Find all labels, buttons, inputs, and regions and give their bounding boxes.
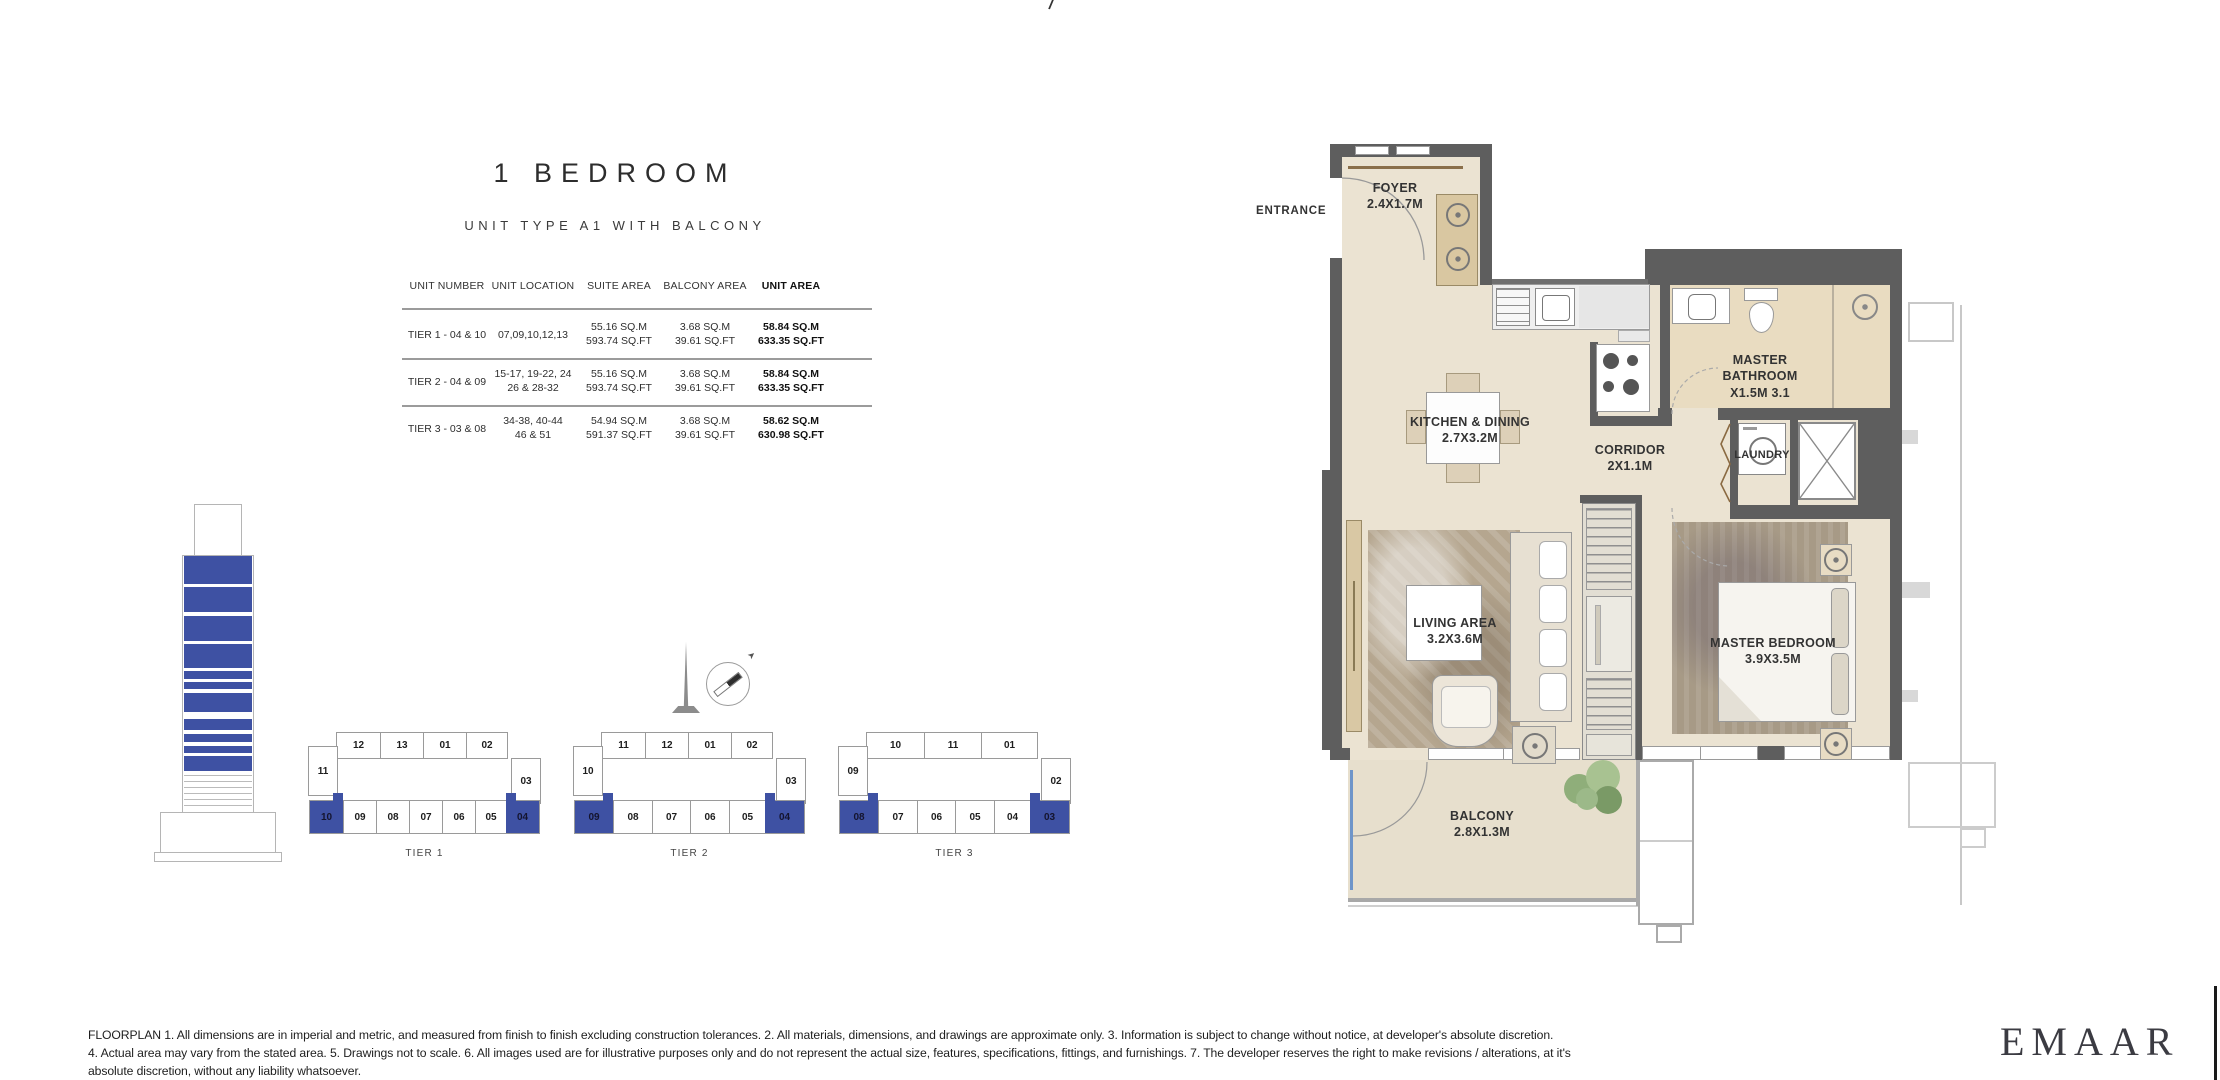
dishwasher — [1496, 288, 1530, 326]
tower-band — [184, 671, 252, 679]
unit-cell-highlighted: 08 — [840, 801, 878, 833]
wall-segment — [1580, 495, 1642, 503]
page-title: 1 BEDROOM — [380, 158, 850, 189]
table-row-cell: 07,09,10,12,13 — [490, 328, 576, 342]
lamp-icon — [1824, 732, 1848, 756]
table-row-cell-unit-area: 58.84 SQ.M633.35 SQ.FT — [748, 367, 834, 395]
tower-band — [184, 756, 252, 771]
unit-cell: 07 — [409, 801, 442, 833]
table-row-cell: 3.68 SQ.M39.61 SQ.FT — [662, 367, 748, 395]
entrance-label: ENTRANCE — [1256, 204, 1324, 219]
laundry-label: LAUNDRY — [1720, 448, 1804, 462]
tier2-left-cell: 10 — [573, 746, 603, 796]
col-header-unit-number: UNIT NUMBER — [404, 280, 490, 292]
unit-cell-highlighted: 04 — [765, 801, 804, 833]
unit-cell: 12 — [337, 733, 380, 758]
tower-elevation — [150, 500, 290, 872]
highlight-notch — [506, 793, 516, 801]
unit-cell: 09 — [343, 801, 376, 833]
unit-cell: 08 — [613, 801, 652, 833]
shower-head-icon — [1852, 294, 1878, 320]
armchair-seat — [1441, 686, 1491, 728]
tower-base — [154, 852, 282, 862]
unit-cell: 02 — [466, 733, 507, 758]
table-row-cell-unit-area: 58.84 SQ.M633.35 SQ.FT — [748, 320, 834, 348]
wall-segment — [1590, 416, 1672, 426]
table-row-cell: 34-38, 40-4446 & 51 — [490, 414, 576, 442]
unit-cell: 12 — [645, 733, 688, 758]
col-header-balcony-area: BALCONY AREA — [662, 280, 748, 292]
col-header-suite-area: SUITE AREA — [576, 280, 662, 292]
table-row-cell: 3.68 SQ.M39.61 SQ.FT — [662, 414, 748, 442]
balcony-glass-line — [1350, 770, 1353, 890]
tier1-left-cell: 11 — [308, 746, 338, 796]
nightstand — [1820, 728, 1852, 760]
kitchen-sink — [1535, 288, 1575, 326]
unit-cell: 06 — [690, 801, 729, 833]
neighbor-outline — [1908, 302, 1954, 342]
sofa-cushion — [1539, 541, 1567, 579]
tower-shaft — [182, 555, 254, 813]
unit-cell: 11 — [602, 733, 645, 758]
tower-band — [184, 746, 252, 753]
table-row-cell: 15-17, 19-22, 2426 & 28-32 — [490, 367, 576, 395]
lamp-icon — [1522, 733, 1548, 759]
foyer-shelf — [1348, 166, 1463, 169]
tier3-keyplan: 10 11 01 09 02 08 07 06 05 04 03 TIER 3 — [838, 726, 1071, 866]
tower-band — [184, 556, 252, 584]
disclaimer-line3: absolute discretion, without any liabili… — [88, 1062, 1918, 1080]
toilet-tank — [1744, 288, 1778, 301]
unit-cell-highlighted: 03 — [1030, 801, 1069, 833]
appliance-dial-icon — [1446, 247, 1470, 271]
unit-cell: 02 — [731, 733, 772, 758]
unit-cell-highlighted: 09 — [575, 801, 613, 833]
unit-cell: 01 — [981, 733, 1037, 758]
wall-segment — [1342, 748, 1350, 760]
table-rule — [402, 405, 872, 407]
unit-cell: 04 — [994, 801, 1030, 833]
tower-band — [184, 616, 252, 641]
unit-cell: 10 — [867, 733, 924, 758]
burner-icon — [1627, 355, 1638, 366]
wall-segment — [1858, 420, 1890, 505]
wardrobe-rail — [1595, 605, 1601, 665]
stove — [1596, 344, 1650, 412]
disclaimer-line1: FLOORPLAN 1. All dimensions are in imper… — [88, 1026, 1918, 1044]
page-subtitle: UNIT TYPE A1 WITH BALCONY — [380, 218, 850, 233]
tower-band — [184, 644, 252, 668]
dining-chair — [1446, 373, 1480, 393]
tier-label: TIER 3 — [838, 848, 1071, 859]
plant — [1560, 758, 1630, 820]
highlight-notch — [765, 793, 775, 801]
tier1-keyplan: 12 13 01 02 11 03 10 09 08 07 06 05 04 T… — [308, 726, 541, 866]
unit-cell: 11 — [309, 747, 337, 795]
sofa-cushion — [1539, 673, 1567, 711]
tier3-right-cell: 02 — [1041, 758, 1071, 804]
col-header-unit-area: UNIT AREA — [748, 280, 834, 292]
counter-speckle — [1579, 286, 1649, 328]
tier3-bottom-row: 08 07 06 05 04 03 — [839, 800, 1070, 834]
brochure-page: / 1 BEDROOM UNIT TYPE A1 WITH BALCONY UN… — [0, 0, 2220, 1080]
corridor-label: CORRIDOR 2X1.1M — [1578, 442, 1682, 475]
kitchen-dining-label: KITCHEN & DINING 2.7X3.2M — [1390, 414, 1550, 447]
lamp-icon — [1824, 548, 1848, 572]
plant-leaf — [1594, 786, 1622, 814]
blanket-fold — [1719, 677, 1761, 721]
table-row-cell: 55.16 SQ.M593.74 SQ.FT — [576, 320, 662, 348]
foyer-label: FOYER 2.4X1.7M — [1340, 180, 1450, 213]
tower-band — [184, 734, 252, 742]
neighbor-outline — [1908, 762, 1996, 828]
wall-segment — [1790, 420, 1798, 505]
master-bathroom-label: MASTER BATHROOM X1.5M 3.1 — [1698, 352, 1822, 401]
table-row-cell: 54.94 SQ.M591.37 SQ.FT — [576, 414, 662, 442]
unit-cell: 11 — [924, 733, 981, 758]
col-header-unit-location: UNIT LOCATION — [490, 280, 576, 292]
unit-cell: 05 — [729, 801, 765, 833]
window-strip — [1428, 748, 1580, 760]
wall-segment — [1660, 285, 1670, 408]
neighbor-tab — [1902, 582, 1930, 598]
unit-cell: 01 — [423, 733, 466, 758]
tower-podium — [160, 812, 276, 856]
top-crop-mark: / — [1047, 0, 1055, 13]
window-strip — [1642, 746, 1758, 760]
sink-basin — [1688, 294, 1716, 320]
unit-cell: 05 — [475, 801, 506, 833]
highlight-notch — [1030, 793, 1040, 801]
window-strip — [1396, 146, 1430, 155]
area-table: UNIT NUMBER UNIT LOCATION SUITE AREA BAL… — [402, 272, 872, 457]
table-rule — [402, 358, 872, 360]
unit-cell: 06 — [917, 801, 955, 833]
structural-column — [1638, 760, 1694, 925]
unit-cell: 07 — [652, 801, 690, 833]
unit-cell: 05 — [955, 801, 994, 833]
wall-segment — [1330, 258, 1342, 760]
living-area-label: LIVING AREA 3.2X3.6M — [1390, 615, 1520, 648]
tower-band — [184, 682, 252, 689]
tier2-bottom-row: 09 08 07 06 05 04 — [574, 800, 805, 834]
tier1-top-row: 12 13 01 02 — [336, 732, 508, 759]
washer-controls — [1743, 427, 1757, 430]
tier1-bottom-row: 10 09 08 07 06 05 04 — [309, 800, 540, 834]
burj-spire-base — [672, 706, 700, 713]
unit-cell: 10 — [574, 747, 602, 795]
column-line — [1640, 840, 1692, 842]
tv-console — [1346, 520, 1362, 732]
wall-segment — [1730, 505, 1902, 519]
structural-column-tab — [1656, 925, 1682, 943]
wall-pier — [1758, 746, 1784, 760]
tier-label: TIER 1 — [308, 848, 541, 859]
balcony-label: BALCONY 2.8X1.3M — [1415, 808, 1549, 841]
tier2-right-cell: 03 — [776, 758, 806, 804]
tower-floor-lines — [184, 775, 252, 811]
tier2-keyplan: 11 12 01 02 10 03 09 08 07 06 05 04 TIER… — [573, 726, 806, 866]
tv-icon — [1353, 581, 1355, 671]
unit-cell-highlighted: 10 — [310, 801, 343, 833]
wall-segment — [1730, 420, 1738, 505]
bathroom-vanity — [1672, 288, 1730, 324]
table-row-cell: TIER 3 - 03 & 08 — [404, 422, 490, 436]
compass-needle — [713, 672, 743, 697]
unit-cell: 01 — [688, 733, 731, 758]
highlight-notch — [603, 793, 613, 801]
unit-cell: 09 — [839, 747, 867, 795]
dining-chair — [1446, 463, 1480, 483]
highlight-notch — [333, 793, 343, 801]
disclaimer: FLOORPLAN 1. All dimensions are in imper… — [88, 1026, 1918, 1080]
balcony-railing-outer — [1348, 905, 1638, 907]
table-row-cell: TIER 1 - 04 & 10 — [404, 328, 490, 342]
shower-divider — [1832, 285, 1834, 408]
wall-segment — [1330, 144, 1342, 178]
tower-cap — [194, 504, 242, 556]
window-mullion — [1700, 747, 1701, 759]
tier2-top-row: 11 12 01 02 — [601, 732, 773, 759]
unit-cell: 03 — [777, 759, 805, 803]
table-row-cell-unit-area: 58.62 SQ.M630.98 SQ.FT — [748, 414, 834, 442]
neighbor-tab — [1902, 430, 1918, 444]
neighbor-outline — [1960, 828, 1986, 848]
page-edge-mark — [2214, 986, 2217, 1080]
unit-cell-highlighted: 04 — [506, 801, 539, 833]
master-bedroom-label: MASTER BEDROOM 3.9X3.5M — [1688, 635, 1858, 668]
tower-band — [184, 693, 252, 712]
service-shaft — [1798, 422, 1856, 500]
wall-segment — [1645, 249, 1902, 285]
burner-icon — [1603, 353, 1619, 369]
wall-segment — [1718, 408, 1902, 420]
table-row-cell: 55.16 SQ.M593.74 SQ.FT — [576, 367, 662, 395]
table-row-cell: 3.68 SQ.M39.61 SQ.FT — [662, 320, 748, 348]
sofa-cushion — [1539, 585, 1567, 623]
wall-segment — [1322, 470, 1330, 750]
tower-band — [184, 587, 252, 612]
wardrobe-hangers — [1586, 678, 1632, 730]
emaar-logo: EMAAR — [2000, 1018, 2179, 1065]
floorplan: ENTRANCE FOYER 2.4X1.7M KITCHEN & DINING… — [1260, 130, 2040, 980]
window-strip — [1355, 146, 1389, 155]
tier3-top-row: 10 11 01 — [866, 732, 1038, 759]
table-row-cell: TIER 2 - 04 & 09 — [404, 375, 490, 389]
unit-cell: 13 — [380, 733, 423, 758]
table-rule — [402, 308, 872, 310]
wall-segment — [1480, 144, 1492, 285]
plant-leaf — [1576, 788, 1598, 810]
kitchen-counter — [1492, 284, 1650, 330]
tier3-left-cell: 09 — [838, 746, 868, 796]
tower-band — [184, 719, 252, 730]
wall-segment — [1636, 495, 1642, 760]
wardrobe-shelf — [1586, 596, 1632, 672]
wardrobe-hangers — [1586, 508, 1632, 590]
unit-cell: 02 — [1042, 759, 1070, 803]
counter-return — [1618, 330, 1650, 342]
unit-cell: 06 — [442, 801, 475, 833]
armchair — [1432, 675, 1498, 747]
highlight-notch — [868, 793, 878, 801]
unit-cell: 03 — [512, 759, 540, 803]
balcony-railing — [1348, 898, 1638, 902]
burj-spire-icon — [678, 642, 694, 708]
sink-basin — [1542, 295, 1570, 321]
neighbor-tab — [1902, 690, 1918, 702]
nightstand — [1820, 544, 1852, 576]
sofa-cushion — [1539, 629, 1567, 667]
compass-north-arrow: ➤ — [745, 649, 758, 662]
tier-label: TIER 2 — [573, 848, 806, 859]
wardrobe — [1582, 503, 1636, 760]
disclaimer-line2: 4. Actual area may vary from the stated … — [88, 1044, 1918, 1062]
compass-icon — [706, 662, 750, 706]
unit-cell: 08 — [376, 801, 409, 833]
burner-icon — [1603, 381, 1614, 392]
window-mullion — [1503, 749, 1504, 759]
wardrobe-drawer — [1586, 734, 1632, 756]
side-table — [1512, 726, 1556, 764]
burner-icon — [1623, 379, 1639, 395]
unit-cell: 07 — [878, 801, 917, 833]
